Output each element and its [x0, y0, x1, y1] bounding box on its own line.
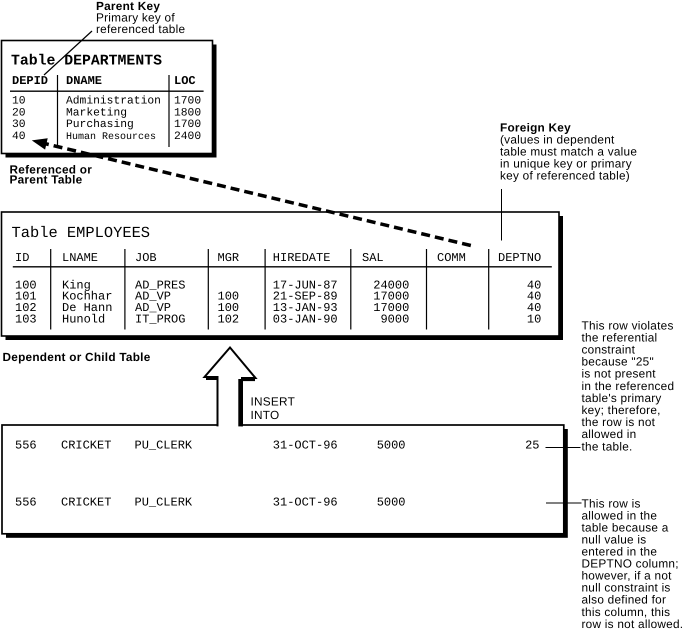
svg-text:PU_CLERK: PU_CLERK — [135, 439, 193, 453]
svg-text:20: 20 — [12, 107, 26, 119]
svg-text:Purchasing: Purchasing — [66, 118, 134, 131]
svg-text:PU_CLERK: PU_CLERK — [135, 495, 193, 509]
svg-text:Parent Table: Parent Table — [10, 172, 83, 186]
svg-text:ID: ID — [15, 251, 29, 265]
svg-text:Dependent or Child Table: Dependent or Child Table — [3, 350, 151, 364]
svg-text:556: 556 — [15, 439, 37, 453]
svg-text:COMM: COMM — [437, 251, 466, 265]
svg-text:SAL: SAL — [362, 251, 384, 265]
svg-text:102: 102 — [218, 313, 240, 327]
svg-text:referenced table: referenced table — [96, 22, 185, 36]
svg-text:IT_PROG: IT_PROG — [135, 313, 185, 327]
svg-text:10: 10 — [12, 95, 26, 107]
svg-text:key of referenced table): key of referenced table) — [500, 169, 630, 183]
svg-text:DEPID: DEPID — [12, 74, 48, 88]
svg-text:103: 103 — [15, 313, 37, 327]
svg-text:Table EMPLOYEES: Table EMPLOYEES — [12, 224, 151, 242]
svg-text:1800: 1800 — [174, 107, 201, 119]
svg-text:LNAME: LNAME — [62, 251, 98, 265]
svg-text:03-JAN-90: 03-JAN-90 — [273, 313, 338, 327]
svg-text:MGR: MGR — [218, 251, 240, 265]
svg-text:5000: 5000 — [377, 439, 406, 453]
svg-text:Hunold: Hunold — [62, 313, 105, 327]
svg-text:Administration: Administration — [66, 94, 161, 107]
svg-text:HIREDATE: HIREDATE — [273, 251, 331, 265]
svg-text:Table DEPARTMENTS: Table DEPARTMENTS — [11, 54, 162, 70]
svg-text:LOC: LOC — [174, 74, 196, 88]
svg-text:Marketing: Marketing — [66, 106, 127, 119]
svg-text:INTO: INTO — [251, 408, 280, 422]
svg-text:CRICKET: CRICKET — [61, 439, 111, 453]
svg-text:31-OCT-96: 31-OCT-96 — [273, 495, 338, 509]
svg-text:25: 25 — [525, 439, 539, 453]
svg-text:DEPTNO: DEPTNO — [498, 251, 541, 265]
svg-text:Human Resources: Human Resources — [66, 132, 156, 143]
svg-text:31-OCT-96: 31-OCT-96 — [273, 439, 338, 453]
svg-text:556: 556 — [15, 495, 37, 509]
svg-text:2400: 2400 — [174, 131, 201, 143]
svg-text:the table.: the table. — [582, 439, 633, 453]
svg-text:1700: 1700 — [174, 119, 201, 131]
svg-text:30: 30 — [12, 119, 26, 131]
svg-text:5000: 5000 — [377, 495, 406, 509]
svg-text:40: 40 — [12, 131, 26, 143]
svg-text:CRICKET: CRICKET — [61, 495, 111, 509]
svg-text:DNAME: DNAME — [66, 74, 102, 88]
svg-text:10: 10 — [527, 313, 541, 327]
svg-text:row is not allowed.: row is not allowed. — [582, 617, 684, 630]
svg-text:9000: 9000 — [380, 313, 409, 327]
svg-text:JOB: JOB — [135, 251, 157, 265]
svg-text:1700: 1700 — [174, 95, 201, 107]
svg-text:INSERT: INSERT — [251, 395, 296, 409]
